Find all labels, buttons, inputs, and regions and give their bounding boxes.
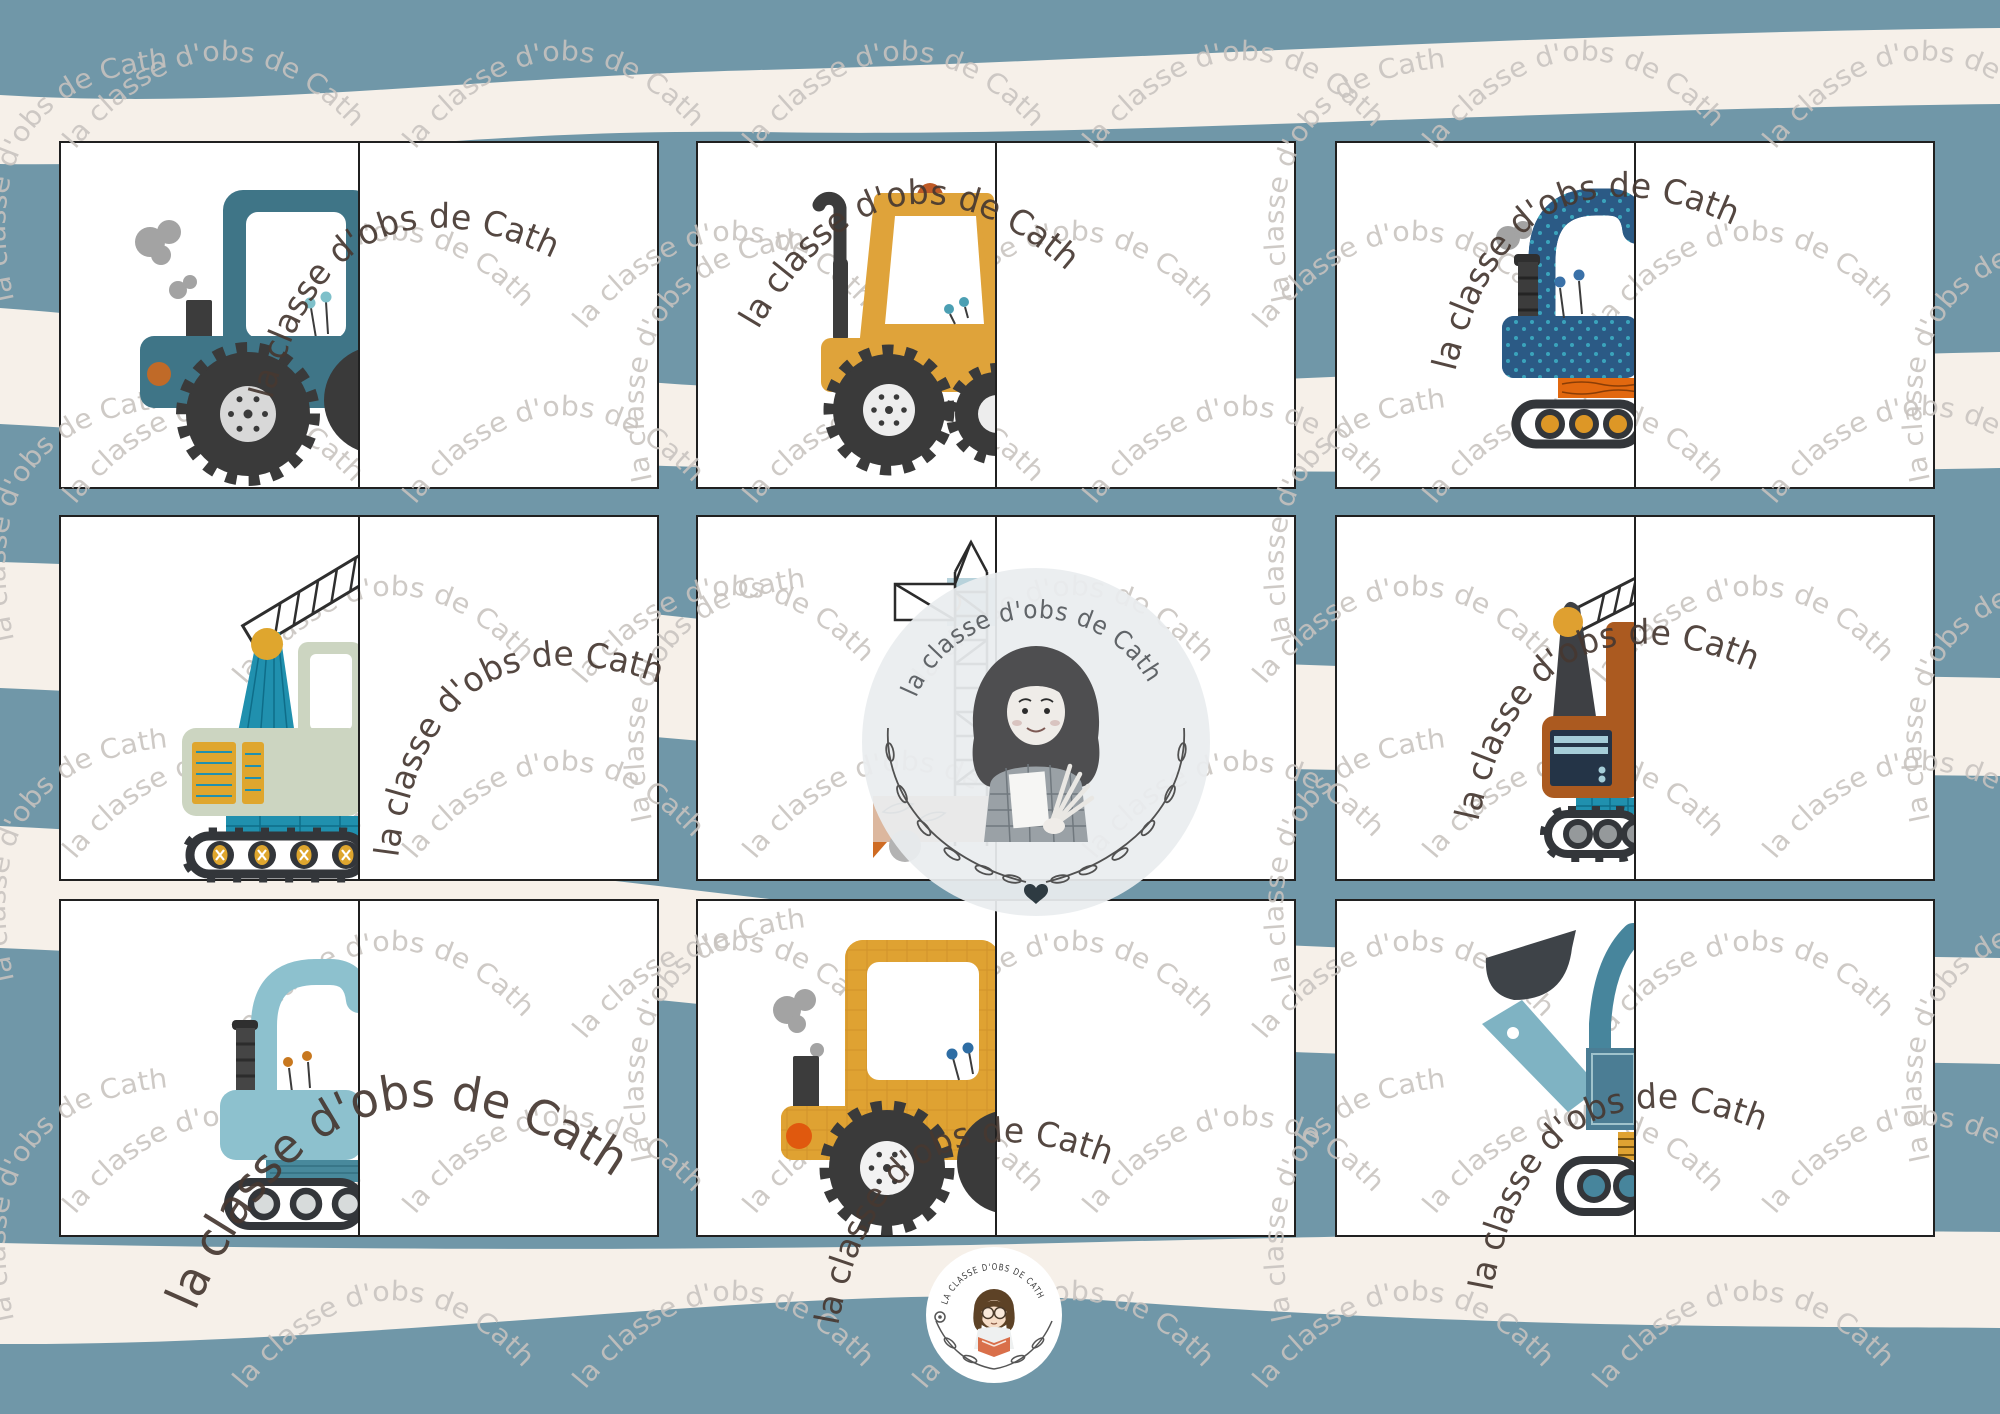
panel-dot <box>1599 767 1606 774</box>
antenna-knob <box>944 304 954 314</box>
footer-brand-badge: LA CLASSE D'OBS DE CATH <box>926 1247 1062 1383</box>
chimney <box>793 1056 819 1108</box>
badge-girl-illustration <box>973 1289 1014 1357</box>
hand <box>1043 818 1065 834</box>
antenna-knob <box>1555 277 1566 288</box>
antenna-knob <box>963 1043 974 1054</box>
antenna-knob <box>302 1051 312 1061</box>
cab-window <box>885 216 984 324</box>
grill-panel <box>242 742 264 804</box>
antenna-knob <box>947 1049 958 1060</box>
headlight-dot <box>147 362 171 386</box>
notepad <box>1009 771 1050 828</box>
exhaust-pipe <box>1518 262 1538 322</box>
front-wheel <box>829 350 949 470</box>
cab-window <box>867 962 979 1080</box>
arm-bolt <box>1507 1027 1519 1039</box>
pulley <box>251 628 283 660</box>
center-logo-watermark: la classe d'obs de Cath <box>862 568 1210 916</box>
worksheet-canvas: la classe d'obs de Cath la classe d'obs … <box>0 0 2000 1414</box>
exhaust-pipe <box>833 258 848 342</box>
cab-window <box>310 654 352 730</box>
panel-bar <box>1554 747 1608 754</box>
headlight-dot <box>786 1123 812 1149</box>
track-wheels <box>1538 412 1630 436</box>
antenna-knob <box>1574 270 1585 281</box>
antenna-knob <box>959 297 969 307</box>
antenna-knob <box>283 1057 293 1067</box>
logo-illustration-woman <box>973 646 1100 842</box>
chassis-strip <box>1558 378 1638 398</box>
worksheet-page: la classe d'obs de Cath la classe d'obs … <box>0 0 2000 1414</box>
panel-bar <box>1554 736 1608 743</box>
panel-dot <box>1599 776 1606 783</box>
body-texture <box>1502 316 1638 378</box>
